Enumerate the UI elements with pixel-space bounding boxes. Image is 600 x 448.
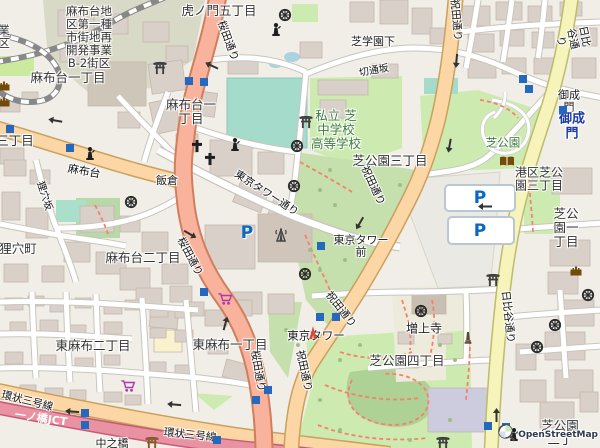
osm-logo-icon <box>497 423 517 446</box>
map-viewport[interactable]: 虎ノ門五丁目麻布台地 区第一種 市街地再 開発事業 B-2街区麻布台一丁目麻布台… <box>0 0 600 448</box>
osm-attribution[interactable]: OpenStreetMap <box>497 423 598 446</box>
map-base-layer <box>0 0 600 448</box>
attribution-text: OpenStreetMap <box>518 430 598 440</box>
